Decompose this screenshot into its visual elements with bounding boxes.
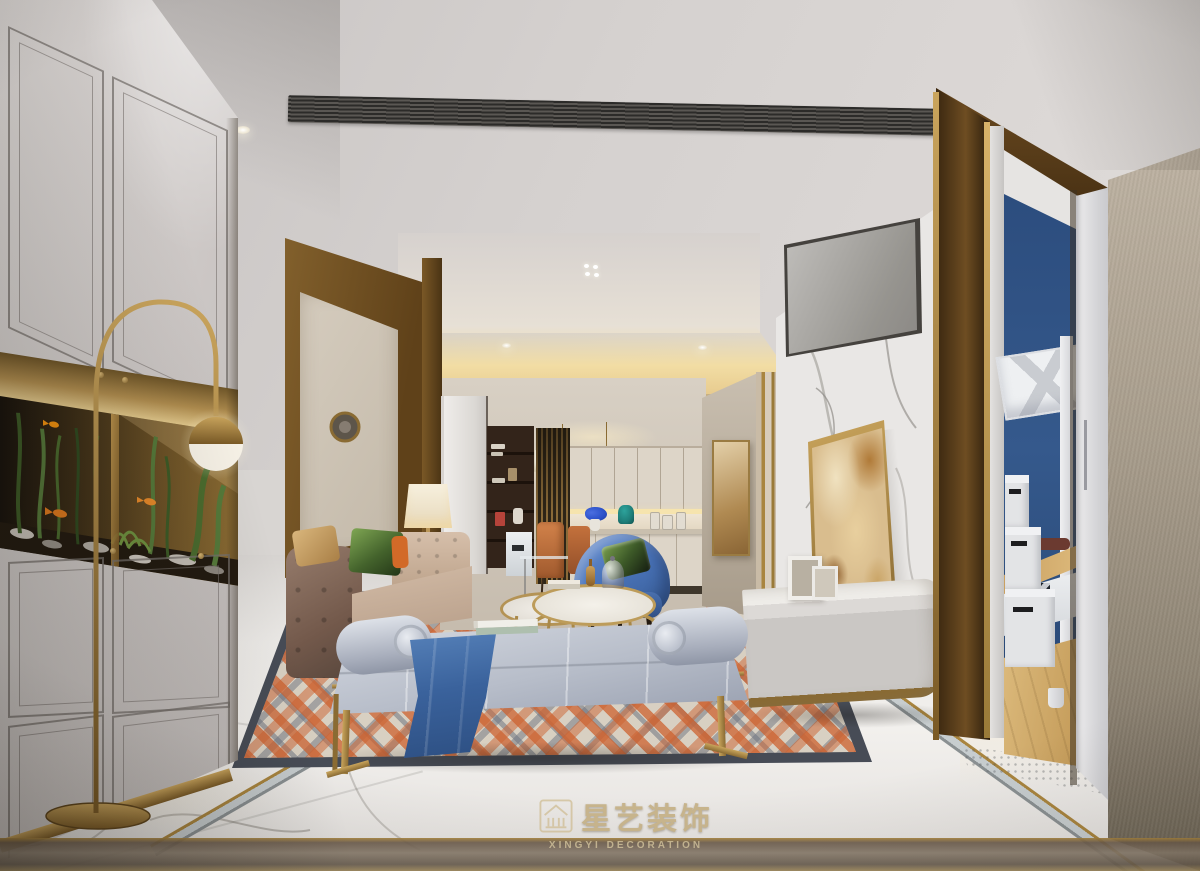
drawer-handle	[1011, 541, 1027, 546]
downlight	[698, 345, 707, 350]
bed-stairs-drawer	[1005, 589, 1055, 667]
bench-books	[474, 619, 541, 639]
ceiling-tray	[398, 233, 760, 333]
photo-frame	[812, 566, 838, 600]
white-door-jamb	[990, 126, 1004, 738]
coffee-table	[532, 584, 656, 626]
table-books	[548, 580, 580, 589]
red-decor	[495, 512, 505, 526]
counter-coral-decor	[618, 505, 634, 524]
dining-table-leg	[524, 559, 526, 595]
downlight	[236, 126, 250, 134]
watermark-logo-icon	[539, 799, 573, 833]
book	[508, 468, 517, 481]
bolster-endcap	[651, 620, 687, 656]
glass-cloche	[602, 560, 624, 588]
book	[491, 444, 505, 449]
drawer-handle	[1009, 489, 1021, 494]
table-lamp	[404, 484, 452, 528]
spot-cluster-light	[584, 264, 602, 278]
dining-chair	[537, 522, 564, 578]
downlight	[502, 343, 511, 348]
book	[491, 452, 503, 456]
decor-bottle	[586, 566, 595, 586]
book	[492, 478, 505, 483]
shadow	[750, 702, 960, 728]
counter-jar	[676, 512, 686, 530]
chandelier-wire	[606, 422, 607, 448]
sunburst-mirror	[280, 362, 410, 492]
framed-wall-art	[712, 440, 750, 556]
counter-vase	[590, 519, 600, 531]
white-vase	[513, 508, 523, 524]
bed-stairs-drawer	[1005, 475, 1029, 527]
bronze-door-pillar	[936, 88, 990, 742]
cabinet-light-glow	[580, 452, 624, 510]
door-handle	[1084, 420, 1087, 490]
media-console	[742, 578, 945, 708]
brass-corner-edge	[933, 92, 939, 740]
gold-pillow	[291, 525, 340, 567]
white-bucket	[1048, 688, 1064, 708]
watermark-subtitle: XINGYI DECORATION	[506, 840, 746, 851]
watermark-title: 星艺装饰	[581, 794, 713, 838]
bolster-pillow	[646, 605, 750, 668]
watermark: 星艺装饰 XINGYI DECORATION	[506, 794, 746, 851]
door-gap-shadow	[1070, 190, 1077, 785]
textured-accent-wall	[1108, 148, 1200, 871]
shadow	[318, 742, 764, 774]
dining-table	[520, 556, 572, 559]
cabinet-light-glow	[648, 452, 692, 510]
orange-pillow	[391, 536, 409, 569]
counter-jar	[650, 512, 660, 530]
bed-stairs-drawer	[1005, 527, 1041, 589]
water-dispenser	[506, 532, 532, 576]
brass-pilaster	[756, 372, 778, 618]
arc-floor-lamp	[18, 268, 278, 848]
interior-render-living-room: 星艺装饰 XINGYI DECORATION	[0, 0, 1200, 871]
counter-jar	[662, 515, 673, 530]
drawer-handle	[1013, 607, 1033, 612]
